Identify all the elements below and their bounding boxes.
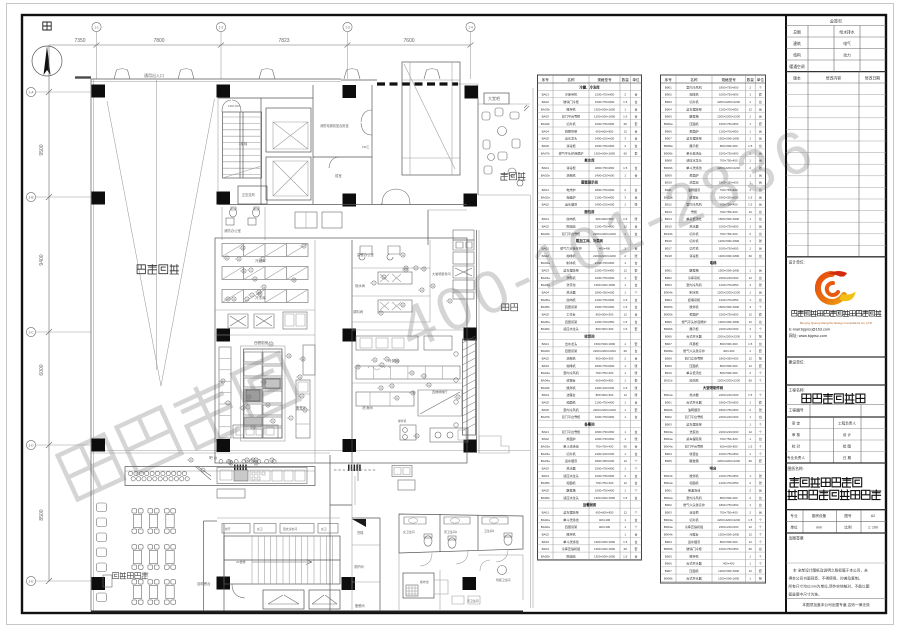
svg-text:电炸炉: 电炸炉 xyxy=(566,187,575,192)
svg-text:压面机: 压面机 xyxy=(689,363,699,368)
svg-text:感应水龙头: 感应水龙头 xyxy=(563,495,578,500)
svg-text:本图须加盖本公司出图专章,否则一律无效: 本图须加盖本公司出图专章,否则一律无效 xyxy=(802,602,870,607)
svg-text:台: 台 xyxy=(634,444,637,449)
svg-text:600×600×850: 600×600×850 xyxy=(596,379,614,383)
svg-text:12: 12 xyxy=(624,313,628,317)
svg-text:2200×2200×2200: 2200×2200×2200 xyxy=(593,408,616,412)
svg-text:B904b: B904b xyxy=(664,532,673,536)
svg-text:大堂吧制作间: 大堂吧制作间 xyxy=(703,385,724,390)
svg-text:1000×750×800: 1000×750×800 xyxy=(595,415,615,419)
svg-text:展示柜: 展示柜 xyxy=(689,326,698,331)
svg-text:BA02a: BA02a xyxy=(541,518,550,522)
svg-text:正压送风: 正压送风 xyxy=(242,192,256,197)
svg-text:套: 套 xyxy=(759,348,762,353)
svg-text:B906: B906 xyxy=(665,562,672,566)
svg-text:风幕柜: 风幕柜 xyxy=(689,341,698,346)
svg-text:得本公司书面同意，不得使用、抄袭及复制。: 得本公司书面同意，不得使用、抄袭及复制。 xyxy=(789,576,863,581)
svg-text:E-mail:bjqnsc@163.com: E-mail:bjqnsc@163.com xyxy=(789,328,830,332)
svg-text:BA01: BA01 xyxy=(542,342,550,346)
svg-text:日 期: 日 期 xyxy=(843,455,852,460)
svg-text:1000×750×800: 1000×750×800 xyxy=(719,547,739,551)
svg-text:收货间: 收货间 xyxy=(584,334,595,339)
svg-text:1: 100: 1: 100 xyxy=(868,525,878,529)
svg-text:60: 60 xyxy=(749,379,753,383)
svg-text:名称: 名称 xyxy=(690,77,698,82)
svg-text:所有尺寸均以mm为单位,须作实地核对，不能以图: 所有尺寸均以mm为单位,须作实地核对，不能以图 xyxy=(789,584,870,589)
svg-text:12: 12 xyxy=(624,225,628,229)
svg-text:1.5: 1.5 xyxy=(748,342,753,346)
svg-text:前室: 前室 xyxy=(335,173,342,178)
svg-text:B914: B914 xyxy=(665,217,672,221)
svg-text:冷库吊机: 冷库吊机 xyxy=(688,275,701,280)
svg-text:1500×500×1800: 1500×500×1800 xyxy=(718,305,739,309)
svg-text:800×500×300: 800×500×300 xyxy=(596,393,614,397)
svg-text:个: 个 xyxy=(759,371,762,375)
svg-text:12: 12 xyxy=(749,540,753,544)
svg-text:1-2: 1-2 xyxy=(219,26,224,30)
svg-text:桌车摆轮架: 桌车摆轮架 xyxy=(686,136,701,141)
svg-text:结构: 结构 xyxy=(793,53,801,58)
svg-text:1500×750×800: 1500×750×800 xyxy=(719,122,739,126)
svg-text:1300×600×1800: 1300×600×1800 xyxy=(594,554,615,558)
svg-text:BA03a: BA03a xyxy=(541,261,550,265)
svg-text:名称: 名称 xyxy=(567,77,575,82)
svg-text:BA05: BA05 xyxy=(542,401,550,405)
svg-text:室内冷风机: 室内冷风机 xyxy=(563,370,579,375)
svg-text:B901a: B901a xyxy=(664,481,673,485)
svg-text:台: 台 xyxy=(634,473,637,478)
svg-text:B916b: B916b xyxy=(664,232,673,236)
svg-text:BA02b: BA02b xyxy=(541,173,550,177)
svg-text:热水器: 热水器 xyxy=(566,290,575,295)
svg-text:60: 60 xyxy=(624,151,628,155)
svg-text:烧水间: 烧水间 xyxy=(355,283,366,288)
svg-text:调料间: 调料间 xyxy=(353,309,364,314)
svg-text:1500×750×800: 1500×750×800 xyxy=(595,144,615,148)
svg-text:60: 60 xyxy=(624,349,628,353)
svg-text:B904a: B904a xyxy=(664,518,673,522)
svg-text:单斗洗涤池: 单斗洗涤池 xyxy=(563,539,578,544)
svg-text:序号: 序号 xyxy=(665,77,673,82)
svg-text:台: 台 xyxy=(759,99,762,104)
svg-text:残疾卫生间: 残疾卫生间 xyxy=(496,577,511,582)
svg-text:拖布池: 拖布池 xyxy=(420,579,429,584)
svg-text:12: 12 xyxy=(749,276,753,280)
svg-text:BA03a: BA03a xyxy=(541,459,550,463)
svg-text:套: 套 xyxy=(634,407,637,412)
svg-text:台: 台 xyxy=(759,246,762,251)
svg-text:醒发箱: 醒发箱 xyxy=(566,487,575,492)
svg-text:更衣试衣间: 更衣试衣间 xyxy=(283,527,297,531)
svg-text:煮面炉: 煮面炉 xyxy=(689,128,698,133)
svg-text:B908: B908 xyxy=(665,357,672,361)
svg-text:修改日期: 修改日期 xyxy=(865,76,880,81)
svg-text:切片机: 切片机 xyxy=(566,121,576,126)
svg-text:1800×750×800: 1800×750×800 xyxy=(595,430,615,434)
svg-text:BA03: BA03 xyxy=(542,269,550,273)
svg-text:1.5: 1.5 xyxy=(748,144,753,148)
svg-text:BA02a: BA02a xyxy=(541,195,550,199)
svg-text:保温汤池: 保温汤池 xyxy=(688,487,700,492)
svg-text:B908a: B908a xyxy=(664,144,673,148)
svg-text:张: 张 xyxy=(634,216,637,221)
svg-text:12: 12 xyxy=(749,430,753,434)
svg-text:双门平台雪柜: 双门平台雪柜 xyxy=(562,231,581,236)
svg-text:冷库吊机: 冷库吊机 xyxy=(565,92,578,97)
svg-text:台: 台 xyxy=(759,414,762,419)
svg-text:B904a: B904a xyxy=(664,437,673,441)
svg-text:12: 12 xyxy=(749,210,753,214)
svg-text:和面机: 和面机 xyxy=(566,480,576,485)
svg-text:1-C: 1-C xyxy=(28,331,34,335)
svg-text:修改内容: 修改内容 xyxy=(826,76,841,81)
svg-text:700×750×400: 700×750×400 xyxy=(720,210,738,214)
svg-text:1000×750×800: 1000×750×800 xyxy=(595,276,615,280)
svg-text:1200×500×1800: 1200×500×1800 xyxy=(718,239,739,243)
svg-text:四层货架: 四层货架 xyxy=(565,319,577,324)
svg-text:1500×750×800: 1500×750×800 xyxy=(719,151,739,155)
svg-text:会签栏: 会签栏 xyxy=(830,18,843,25)
svg-text:1300×600×1800: 1300×600×1800 xyxy=(594,151,615,155)
svg-text:个: 个 xyxy=(759,445,762,449)
svg-text:煮面炉: 煮面炉 xyxy=(689,172,698,177)
svg-text:1300×600×1800: 1300×600×1800 xyxy=(594,283,615,287)
svg-text:厨房设备: 厨房设备 xyxy=(812,513,827,518)
svg-text:通用出入口: 通用出入口 xyxy=(144,72,164,78)
svg-text:台式开水器: 台式开水器 xyxy=(686,575,701,580)
svg-text:800×500×300: 800×500×300 xyxy=(596,327,614,331)
svg-text:BA02: BA02 xyxy=(542,100,550,104)
svg-text:1200×700×850: 1200×700×850 xyxy=(595,93,615,97)
svg-text:个: 个 xyxy=(759,305,762,309)
svg-text:1.5: 1.5 xyxy=(748,518,753,522)
svg-text:四门立身雪柜: 四门立身雪柜 xyxy=(685,356,704,361)
svg-text:2400×220×600: 2400×220×600 xyxy=(719,525,739,529)
svg-text:醒发箱: 醒发箱 xyxy=(689,458,698,463)
svg-text:张: 张 xyxy=(759,575,762,580)
svg-text:张: 张 xyxy=(634,436,637,441)
svg-text:咖啡机: 咖啡机 xyxy=(566,363,576,368)
svg-text:600×600×850: 600×600×850 xyxy=(596,510,614,514)
svg-text:B908: B908 xyxy=(665,159,672,163)
svg-text:BA04: BA04 xyxy=(542,393,550,397)
svg-text:建设单位:: 建设单位: xyxy=(789,360,805,365)
svg-text:个: 个 xyxy=(634,467,637,471)
svg-text:台: 台 xyxy=(759,150,762,155)
svg-text:四层货架: 四层货架 xyxy=(565,304,577,309)
svg-text:女卫: 女卫 xyxy=(257,527,263,531)
svg-text:醒发箱: 醒发箱 xyxy=(689,114,698,119)
svg-text:B910: B910 xyxy=(665,181,672,185)
svg-text:BA01: BA01 xyxy=(542,93,550,97)
svg-text:1800×350×600: 1800×350×600 xyxy=(595,459,615,463)
svg-text:台: 台 xyxy=(634,319,637,324)
svg-text:台: 台 xyxy=(759,187,762,192)
svg-text:12: 12 xyxy=(624,481,628,485)
svg-text:BA04: BA04 xyxy=(542,291,550,295)
svg-text:BA01: BA01 xyxy=(542,430,550,434)
svg-text:B902b: B902b xyxy=(664,408,673,412)
svg-text:建筑: 建筑 xyxy=(793,41,801,46)
svg-text:大堂吧: 大堂吧 xyxy=(488,95,500,101)
svg-text:2100×750×800: 2100×750×800 xyxy=(595,401,615,405)
svg-text:FRZ.053: FRZ.053 xyxy=(228,104,240,108)
svg-text:1300×600×1800: 1300×600×1800 xyxy=(594,496,615,500)
svg-text:台: 台 xyxy=(634,143,637,148)
svg-text:燃气六头煲仔炉: 燃气六头煲仔炉 xyxy=(560,246,582,251)
svg-text:套: 套 xyxy=(634,121,637,126)
svg-text:BA01: BA01 xyxy=(542,247,550,251)
svg-text:B905b: B905b xyxy=(664,305,673,309)
svg-text:图纸名称:: 图纸名称: xyxy=(788,466,804,471)
svg-text:个: 个 xyxy=(634,291,637,295)
svg-text:BA02: BA02 xyxy=(542,254,550,258)
svg-text:台: 台 xyxy=(634,312,637,317)
svg-text:BA04b: BA04b xyxy=(541,122,550,126)
svg-text:洗碗机: 洗碗机 xyxy=(566,275,576,280)
svg-text:7600: 7600 xyxy=(403,38,414,44)
svg-text:套: 套 xyxy=(759,458,762,463)
svg-text:1-D: 1-D xyxy=(28,444,34,448)
svg-text:1000×750×800: 1000×750×800 xyxy=(719,247,739,251)
svg-text:BA04b: BA04b xyxy=(541,386,550,390)
svg-text:1200×500×1800: 1200×500×1800 xyxy=(718,532,739,536)
svg-text:1000×750×800: 1000×750×800 xyxy=(719,93,739,97)
svg-text:600×600×850: 600×600×850 xyxy=(596,129,614,133)
svg-text:收银台: 收银台 xyxy=(689,451,698,456)
svg-text:台: 台 xyxy=(634,480,637,485)
svg-text:台: 台 xyxy=(759,202,762,207)
svg-text:台: 台 xyxy=(759,341,762,346)
svg-text:面包房: 面包房 xyxy=(584,209,595,214)
svg-text:个: 个 xyxy=(634,510,637,514)
svg-text:12: 12 xyxy=(624,269,628,273)
svg-text:B911: B911 xyxy=(665,188,672,192)
svg-text:张: 张 xyxy=(759,407,762,412)
svg-text:台: 台 xyxy=(634,187,637,192)
svg-text:400×400: 400×400 xyxy=(599,247,611,251)
svg-text:6000: 6000 xyxy=(39,364,45,375)
svg-text:B906: B906 xyxy=(665,129,672,133)
svg-text:双门平台雪柜: 双门平台雪柜 xyxy=(562,429,581,434)
svg-text:吧台: 吧台 xyxy=(710,466,717,471)
svg-text:BA05b: BA05b xyxy=(541,554,550,558)
svg-text:BA03: BA03 xyxy=(542,540,550,544)
svg-text:个: 个 xyxy=(759,430,762,434)
svg-text:600×600×850: 600×600×850 xyxy=(596,217,614,221)
svg-text:B906a: B906a xyxy=(664,122,673,126)
svg-text:60: 60 xyxy=(624,547,628,551)
svg-text:1200×500×1800: 1200×500×1800 xyxy=(594,115,615,119)
svg-text:1200×700×850: 1200×700×850 xyxy=(719,481,739,485)
svg-text:污碟台: 污碟台 xyxy=(689,531,698,536)
svg-text:B905: B905 xyxy=(665,115,672,119)
svg-text:B905b: B905b xyxy=(664,547,673,551)
svg-text:挂墙吊柜: 挂墙吊柜 xyxy=(688,297,700,302)
svg-text:1800×750×800: 1800×750×800 xyxy=(595,166,615,170)
svg-text:1800×750×800: 1800×750×800 xyxy=(719,503,739,507)
svg-text:室内冷风机: 室内冷风机 xyxy=(686,495,702,500)
svg-text:1800×350×600: 1800×350×600 xyxy=(595,291,615,295)
svg-text:1-3: 1-3 xyxy=(345,26,350,30)
svg-text:mm: mm xyxy=(816,525,822,529)
svg-text:洗手池: 洗手池 xyxy=(566,282,575,287)
svg-text:桌车摆轮架: 桌车摆轮架 xyxy=(686,436,701,441)
svg-text:800×500×300: 800×500×300 xyxy=(596,313,614,317)
svg-text:1.5: 1.5 xyxy=(748,195,753,199)
svg-text:1000×750×800: 1000×750×800 xyxy=(719,452,739,456)
svg-text:2200×2200×2200: 2200×2200×2200 xyxy=(717,291,740,295)
svg-text:切片机: 切片机 xyxy=(689,238,699,243)
svg-text:700×750×400: 700×750×400 xyxy=(596,371,614,375)
svg-text:台: 台 xyxy=(634,539,637,544)
svg-text:BA07b: BA07b xyxy=(541,415,550,419)
svg-text:台: 台 xyxy=(634,282,637,287)
svg-text:B904: B904 xyxy=(665,540,672,544)
svg-text:2100×750×800: 2100×750×800 xyxy=(595,298,615,302)
svg-text:1.5: 1.5 xyxy=(623,386,628,390)
svg-text:台: 台 xyxy=(634,297,637,302)
svg-text:个: 个 xyxy=(634,488,637,492)
svg-text:1200×700×850: 1200×700×850 xyxy=(719,298,739,302)
svg-text:粗加工间、冷菜间: 粗加工间、冷菜间 xyxy=(576,238,604,243)
svg-text:1800×750×800: 1800×750×800 xyxy=(719,401,739,405)
svg-text:2200×2200×2200: 2200×2200×2200 xyxy=(593,349,616,353)
svg-text:台: 台 xyxy=(759,216,762,221)
svg-text:800×500×300: 800×500×300 xyxy=(720,364,738,368)
svg-text:台: 台 xyxy=(759,275,762,280)
svg-text:桌车摆轮架: 桌车摆轮架 xyxy=(563,509,578,514)
svg-text:套: 套 xyxy=(759,400,762,405)
svg-text:台: 台 xyxy=(759,106,762,111)
svg-text:B901: B901 xyxy=(665,85,672,89)
svg-text:室内冷风机: 室内冷风机 xyxy=(686,202,702,207)
svg-text:B903: B903 xyxy=(665,423,672,427)
svg-text:前厅: 前厅 xyxy=(225,527,231,531)
svg-text:B905: B905 xyxy=(665,459,672,463)
svg-text:台: 台 xyxy=(759,194,762,199)
svg-text:2200×2200×2200: 2200×2200×2200 xyxy=(593,232,616,236)
svg-text:1800×750×800: 1800×750×800 xyxy=(595,188,615,192)
svg-text:B902a: B902a xyxy=(664,496,673,500)
svg-text:台: 台 xyxy=(634,451,637,456)
svg-text:审 核: 审 核 xyxy=(792,432,801,437)
svg-text:收银台: 收银台 xyxy=(566,378,575,383)
svg-text:B902: B902 xyxy=(665,276,672,280)
svg-text:备餐间: 备餐间 xyxy=(583,422,595,427)
svg-text:油网烟罩: 油网烟罩 xyxy=(688,407,700,412)
svg-text:1800×350×600: 1800×350×600 xyxy=(719,357,739,361)
svg-text:9500: 9500 xyxy=(39,144,45,155)
svg-text:搅拌机: 搅拌机 xyxy=(566,106,576,111)
svg-text:1000×750×800: 1000×750×800 xyxy=(595,122,615,126)
svg-text:BA03b: BA03b xyxy=(541,107,550,111)
svg-text:单位: 单位 xyxy=(632,77,640,82)
svg-text:个: 个 xyxy=(759,562,762,566)
svg-text:个: 个 xyxy=(759,518,762,522)
svg-text:数量: 数量 xyxy=(747,77,755,82)
svg-text:1300×600×1800: 1300×600×1800 xyxy=(718,254,739,258)
svg-text:台: 台 xyxy=(634,429,637,434)
svg-text:燃气平头炉连焗炉: 燃气平头炉连焗炉 xyxy=(682,319,707,324)
svg-text:套: 套 xyxy=(759,121,762,126)
svg-text:个: 个 xyxy=(759,554,762,558)
svg-text:台: 台 xyxy=(634,172,637,177)
svg-text:B908a: B908a xyxy=(664,349,673,353)
svg-text:雪柜: 雪柜 xyxy=(691,209,697,214)
svg-text:1800×750×800: 1800×750×800 xyxy=(719,85,739,89)
svg-text:B915: B915 xyxy=(665,225,672,229)
svg-text:双门平台雪柜: 双门平台雪柜 xyxy=(685,414,704,419)
svg-text:搅拌机: 搅拌机 xyxy=(689,304,699,309)
svg-text:套: 套 xyxy=(759,92,762,97)
svg-text:台式开水器: 台式开水器 xyxy=(686,561,701,566)
svg-text:1000×750×800: 1000×750×800 xyxy=(595,437,615,441)
svg-text:BA01: BA01 xyxy=(542,217,550,221)
svg-text:700×750×400: 700×750×400 xyxy=(720,437,738,441)
svg-text:套: 套 xyxy=(634,275,637,280)
svg-text:出水龙头: 出水龙头 xyxy=(565,136,577,141)
svg-text:吧 台: 吧 台 xyxy=(209,455,218,460)
svg-text:四层货架: 四层货架 xyxy=(565,128,577,133)
svg-text:燃气六头煲仔炉: 燃气六头煲仔炉 xyxy=(683,348,705,353)
svg-text:700×750×400: 700×750×400 xyxy=(720,510,738,514)
svg-text:B904a: B904a xyxy=(664,445,673,449)
svg-text:B902: B902 xyxy=(665,415,672,419)
svg-text:1.5: 1.5 xyxy=(623,496,628,500)
svg-text:个: 个 xyxy=(759,452,762,456)
svg-text:单斗洗涤池: 单斗洗涤池 xyxy=(563,517,578,522)
svg-text:女卫: 女卫 xyxy=(321,527,327,531)
svg-text:双门平台雪柜: 双门平台雪柜 xyxy=(562,114,581,119)
svg-text:60: 60 xyxy=(749,459,753,463)
svg-text:台: 台 xyxy=(634,531,637,536)
svg-text:醒发箱: 醒发箱 xyxy=(689,268,698,273)
svg-text:12: 12 xyxy=(749,107,753,111)
svg-text:热水器: 热水器 xyxy=(566,466,575,471)
svg-text:台式开水器: 台式开水器 xyxy=(686,400,701,405)
svg-text:个: 个 xyxy=(759,423,762,427)
svg-text:冷库压缩机组: 冷库压缩机组 xyxy=(562,546,581,551)
svg-text:400×400: 400×400 xyxy=(723,562,735,566)
svg-text:800×500×300: 800×500×300 xyxy=(596,357,614,361)
svg-text:绘 图: 绘 图 xyxy=(843,444,852,449)
svg-text:B902: B902 xyxy=(665,503,672,507)
svg-text:B901: B901 xyxy=(665,401,672,405)
svg-text:B910: B910 xyxy=(665,371,672,375)
svg-text:1000×750×800: 1000×750×800 xyxy=(595,474,615,478)
svg-text:12: 12 xyxy=(749,364,753,368)
svg-text:12: 12 xyxy=(749,525,753,529)
svg-text:感应水龙头: 感应水龙头 xyxy=(563,473,578,478)
svg-text:2200×2200×2200: 2200×2200×2200 xyxy=(717,335,740,339)
svg-text:700×750×400: 700×750×400 xyxy=(596,481,614,485)
svg-text:消毒柜: 消毒柜 xyxy=(689,253,698,258)
svg-text:出水龙头: 出水龙头 xyxy=(565,341,577,346)
svg-text:1.5: 1.5 xyxy=(748,393,753,397)
svg-text:BA07b: BA07b xyxy=(541,151,550,155)
svg-text:套: 套 xyxy=(634,326,637,331)
svg-text:和面机: 和面机 xyxy=(689,480,699,485)
svg-text:玻璃门冷柜: 玻璃门冷柜 xyxy=(686,546,701,551)
svg-text:9400: 9400 xyxy=(39,254,45,265)
svg-text:套: 套 xyxy=(759,312,762,317)
svg-text:洗菜池: 洗菜池 xyxy=(689,180,698,185)
svg-text:工程名称:: 工程名称: xyxy=(789,388,805,393)
svg-text:四层货架: 四层货架 xyxy=(565,348,577,353)
svg-text:1.5: 1.5 xyxy=(748,445,753,449)
svg-text:西餐厨房: 西餐厨房 xyxy=(254,340,269,345)
